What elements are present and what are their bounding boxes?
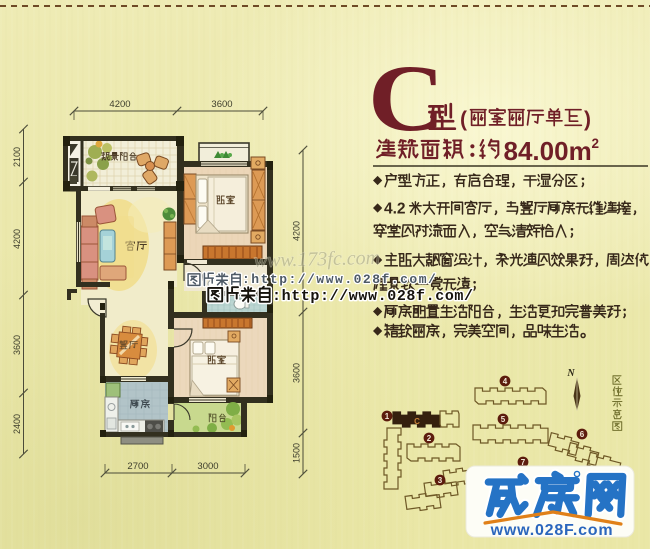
svg-text:3: 3 [438,476,443,485]
svg-text:2100: 2100 [12,147,22,167]
svg-text:84.00m: 84.00m [504,136,592,166]
svg-text:): ) [584,108,591,131]
svg-text:2700: 2700 [127,461,148,472]
svg-text:N: N [566,368,575,379]
svg-text:6: 6 [580,430,585,439]
svg-text::http://www.028f.com/: :http://www.028f.com/ [272,288,474,305]
svg-text:3600: 3600 [292,363,302,383]
svg-text:4200: 4200 [12,229,22,249]
svg-text:5: 5 [501,415,506,424]
svg-text:3000: 3000 [197,461,218,472]
svg-text:www.028F.com: www.028F.com [490,522,614,539]
svg-text:(: ( [460,108,467,131]
svg-text:C: C [368,45,445,150]
svg-text:4.2: 4.2 [384,201,406,218]
svg-text:1500: 1500 [292,443,302,463]
svg-text:C: C [414,417,420,426]
svg-text:4200: 4200 [109,99,130,110]
svg-text:2: 2 [427,434,432,443]
svg-text:3600: 3600 [211,99,232,110]
svg-text:1: 1 [385,412,390,421]
svg-text:2: 2 [592,136,600,151]
svg-text:3600: 3600 [12,335,22,355]
svg-text:2400: 2400 [12,414,22,434]
svg-text:4200: 4200 [292,221,302,241]
svg-text:www.173fc.com: www.173fc.com [254,247,381,272]
svg-text:4: 4 [503,377,508,386]
svg-text::http://www.028f.com/: :http://www.028f.com/ [242,272,437,287]
